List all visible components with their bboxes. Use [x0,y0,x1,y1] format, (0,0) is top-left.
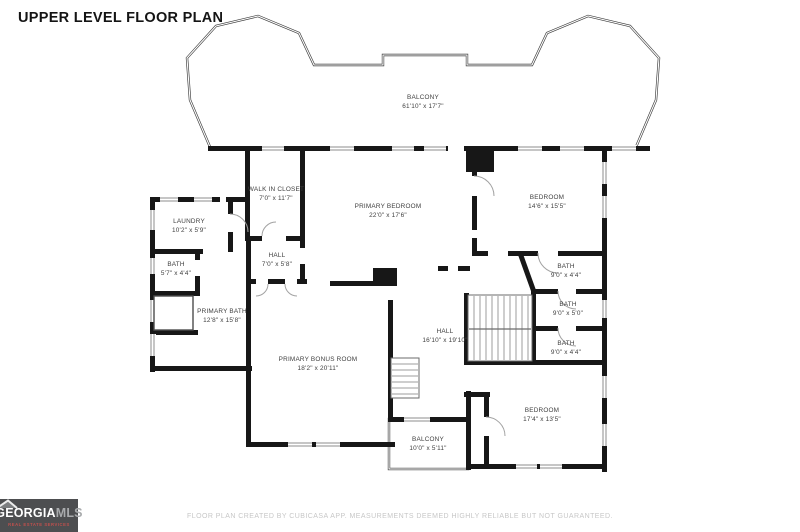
chimney-mass [466,146,494,172]
room-label-walk-in-closet: WALK IN CLOSET [248,186,304,193]
room-dims-laundry: 10'2" x 5'9" [172,227,206,234]
room-dims-hall-small: 7'0" x 5'8" [262,261,292,268]
roof-icon [0,499,19,509]
room-dims-bedroom-upper: 14'6" x 15'5" [528,203,566,210]
room-dims-hall-large: 16'10" x 19'10" [422,337,467,344]
shower-fixture [154,296,193,330]
floor-plan-drawing: BALCONY 61'10" x 17'7" WALK IN CLOSET 7'… [0,0,800,532]
room-dims-bath-top-right: 9'0" x 4'4" [551,272,581,279]
room-label-bedroom-lower: BEDROOM [525,407,559,414]
main-staircase [468,295,532,361]
room-dims-bottom-balcony: 10'0" x 5'11" [409,445,446,452]
wall-pillar [373,268,397,284]
footer-disclaimer: FLOOR PLAN CREATED BY CUBICASA APP. MEAS… [0,513,800,520]
room-label-bath-middle: BATH [559,301,577,308]
room-dims-bedroom-lower: 17'4" x 13'5" [523,416,561,423]
logo-tagline: REAL ESTATE SERVICES [8,522,70,527]
room-dims-top-balcony: 61'10" x 17'7" [402,103,443,110]
room-label-primary-bedroom: PRIMARY BEDROOM [355,203,422,210]
room-dims-bath-lower: 9'0" x 4'4" [551,349,581,356]
room-label-primary-bath: PRIMARY BATH [197,308,247,315]
room-label-laundry: LAUNDRY [173,218,205,225]
room-dims-bath-left: 5'7" x 4'4" [161,270,191,277]
room-dims-bath-middle: 9'0" x 5'0" [553,310,583,317]
secondary-steps [391,358,419,398]
room-dims-primary-bonus: 18'2" x 20'11" [298,365,339,372]
floor-plan-page: UPPER LEVEL FLOOR PLAN [0,0,800,532]
room-dims-primary-bedroom: 22'0" x 17'6" [369,212,407,219]
room-label-bath-top-right: BATH [557,263,575,270]
bottom-balcony-railing [389,419,468,469]
room-label-hall-large: HALL [437,328,454,335]
room-dims-walk-in-closet: 7'0" x 11'7" [259,195,292,202]
room-label-primary-bonus: PRIMARY BONUS ROOM [279,356,358,363]
room-dims-primary-bath: 12'8" x 15'8" [203,317,241,324]
room-label-top-balcony: BALCONY [407,94,439,101]
room-label-bath-lower: BATH [557,340,575,347]
room-label-bottom-balcony: BALCONY [412,436,444,443]
room-label-bath-left: BATH [167,261,185,268]
top-balcony-railing [187,16,659,147]
room-label-bedroom-upper: BEDROOM [530,194,564,201]
room-label-hall-small: HALL [269,252,286,259]
